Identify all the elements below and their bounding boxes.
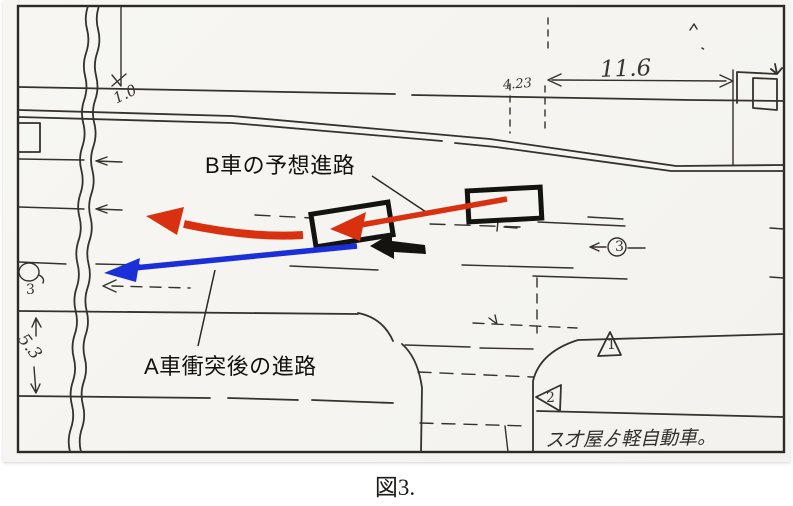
diagram-drawing xyxy=(3,0,790,462)
dimension-4-23-text: 4.23 xyxy=(503,76,533,93)
building-outline-top-right xyxy=(737,64,782,110)
road-edge-double-b xyxy=(19,117,784,171)
road-edge-lower xyxy=(19,396,393,403)
handwritten-note: ス才屋ゟ軽自動車。 xyxy=(545,423,716,453)
red-arrow-predicted-head xyxy=(330,212,366,241)
lane-segments-mid xyxy=(290,265,573,270)
lane-segment-right-1 xyxy=(533,276,627,279)
scan-specks xyxy=(690,24,704,49)
center-lane-segment xyxy=(538,217,625,226)
triangle-2-text: 2 xyxy=(546,390,555,406)
red-arrow-main-head xyxy=(146,207,184,235)
lane-line-left-3 xyxy=(19,262,140,265)
junction-dashed-line-1 xyxy=(418,372,533,377)
red-arrow-main-shaft xyxy=(184,224,303,236)
accident-diagram-figure: B車の予想進路 A車衝突後の進路 11.6 4.23 1.0 5.3 3 3 1… xyxy=(0,0,793,506)
lane-line-left-1 xyxy=(19,157,122,165)
scanned-sheet: B車の予想進路 A車衝突後の進路 11.6 4.23 1.0 5.3 3 3 1… xyxy=(3,0,790,462)
junction-dashed-line-2 xyxy=(420,423,527,426)
junction-dash-vertical xyxy=(505,426,508,452)
right-border-ticks xyxy=(770,228,784,278)
river-wavy-line-right xyxy=(80,6,100,452)
dimension-11-6-text: 11.6 xyxy=(600,55,652,83)
figure-caption: 図3. xyxy=(330,468,460,502)
sketch-border-frame xyxy=(18,6,784,452)
left-circle-marker xyxy=(19,263,44,283)
blue-arrow-a-car-shaft xyxy=(134,246,357,268)
triangle-1-text: 1 xyxy=(607,337,616,353)
label-a-after-collision-path: A車衝突後の進路 xyxy=(144,349,317,381)
a-label-leader-line xyxy=(198,270,215,346)
junction-dashed-cross-line xyxy=(473,315,577,328)
river-wavy-line-left xyxy=(69,6,89,452)
circled-3-left-text: 3 xyxy=(26,282,35,298)
blue-arrow-a-car-head xyxy=(104,258,140,282)
road-edge-middle xyxy=(19,311,358,314)
label-b-predicted-path: B車の予想進路 xyxy=(205,148,355,180)
survey-line-top-left xyxy=(112,6,126,86)
circled-3-right-text: 3 xyxy=(615,239,624,255)
junction-left-edge xyxy=(358,313,422,452)
left-notch-rectangle xyxy=(19,123,40,152)
b-label-leader-line xyxy=(372,176,429,214)
dashed-left-arrow-line xyxy=(112,286,190,288)
junction-stop-line xyxy=(405,345,533,349)
road-edge-lower-right xyxy=(537,411,784,417)
lane-line-left-2 xyxy=(19,205,122,213)
